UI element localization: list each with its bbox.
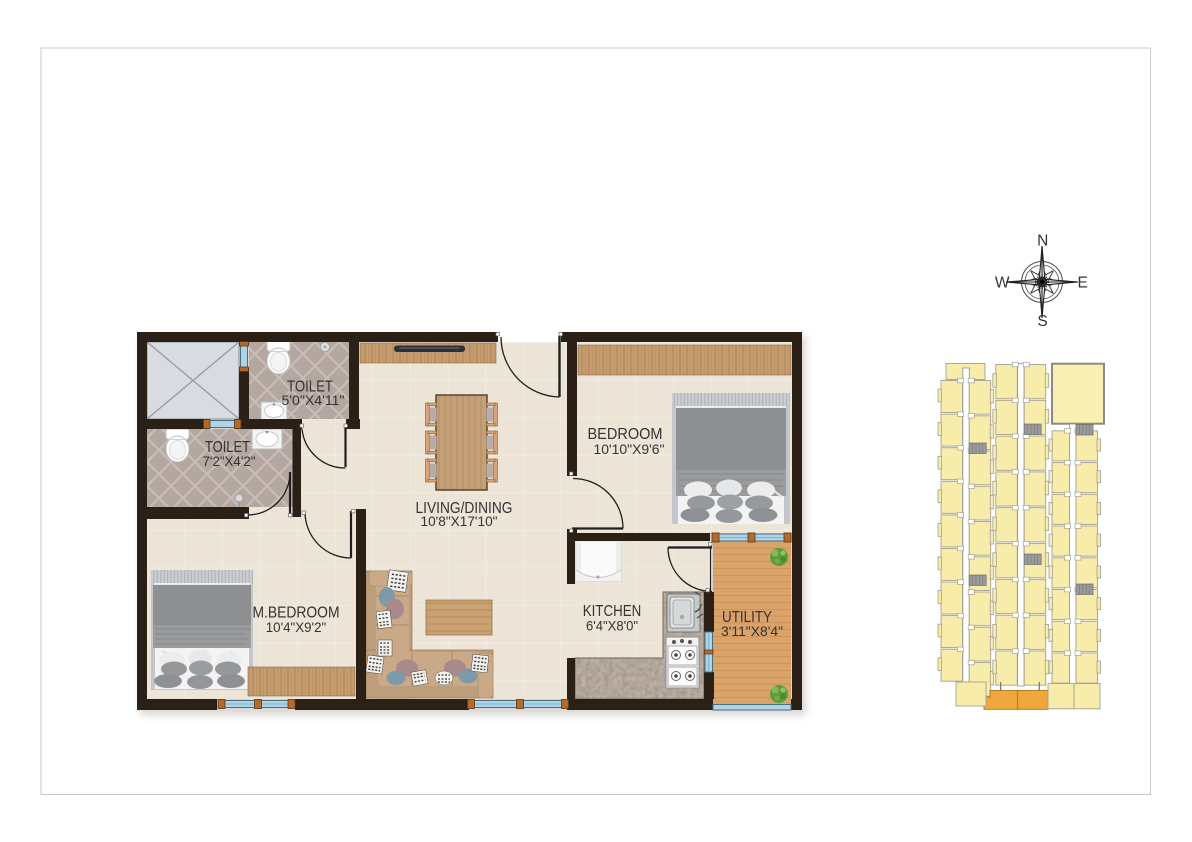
svg-text:6'4"X8'0": 6'4"X8'0"	[586, 618, 638, 634]
svg-text:10'8"X17'10": 10'8"X17'10"	[421, 513, 498, 529]
svg-text:W: W	[995, 275, 1010, 292]
svg-text:7'2"X4'2": 7'2"X4'2"	[203, 453, 256, 469]
svg-text:10'4"X9'2": 10'4"X9'2"	[266, 619, 327, 635]
svg-text:S: S	[1037, 313, 1047, 330]
svg-text:N: N	[1037, 233, 1048, 250]
svg-text:3'11"X8'4": 3'11"X8'4"	[721, 623, 783, 639]
svg-text:E: E	[1078, 275, 1088, 292]
svg-text:5'0"X4'11": 5'0"X4'11"	[282, 392, 345, 408]
svg-text:10'10"X9'6": 10'10"X9'6"	[594, 441, 665, 457]
